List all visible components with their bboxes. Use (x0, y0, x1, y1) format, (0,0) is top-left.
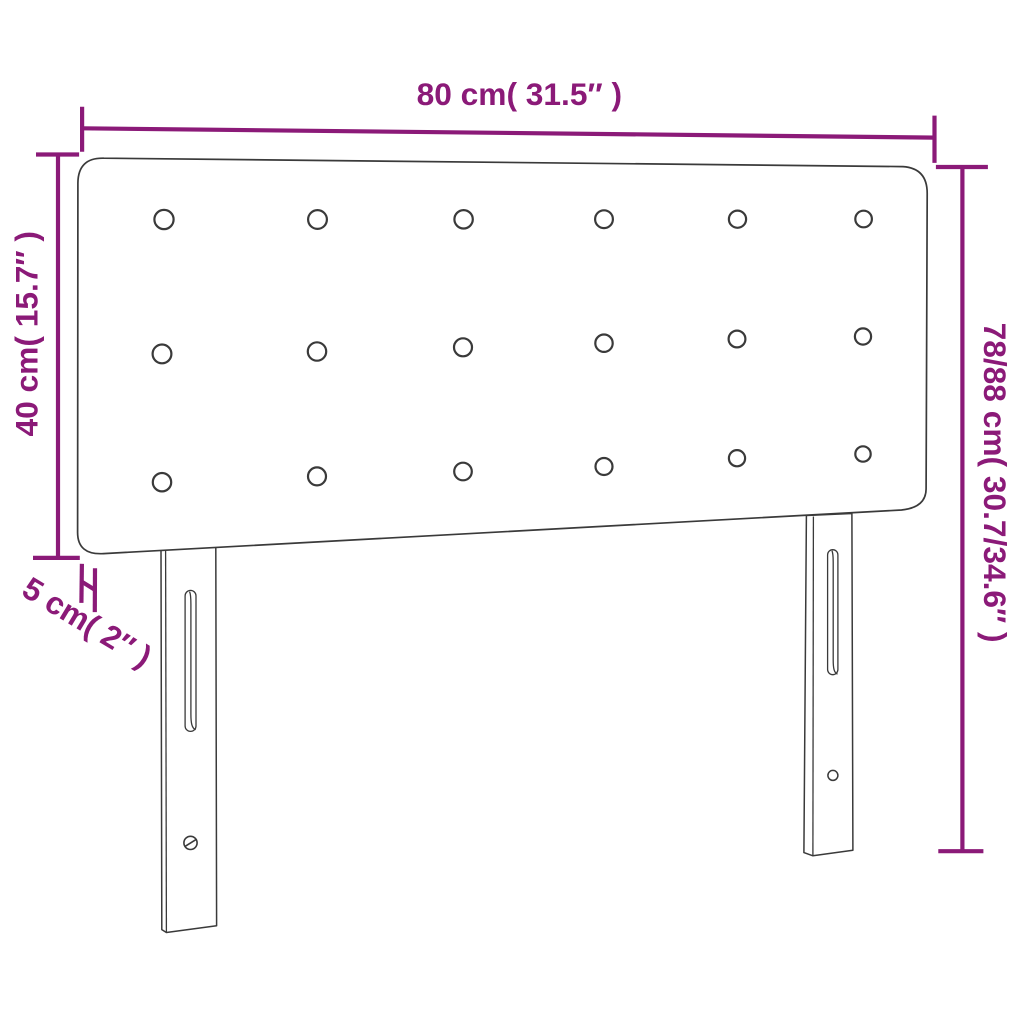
svg-text:80 cm( 31.5″ ): 80 cm( 31.5″ ) (417, 76, 622, 112)
svg-text:78/88 cm( 30.7/34.6″ ): 78/88 cm( 30.7/34.6″ ) (977, 323, 1013, 643)
svg-text:40 cm( 15.7″ ): 40 cm( 15.7″ ) (9, 231, 45, 436)
